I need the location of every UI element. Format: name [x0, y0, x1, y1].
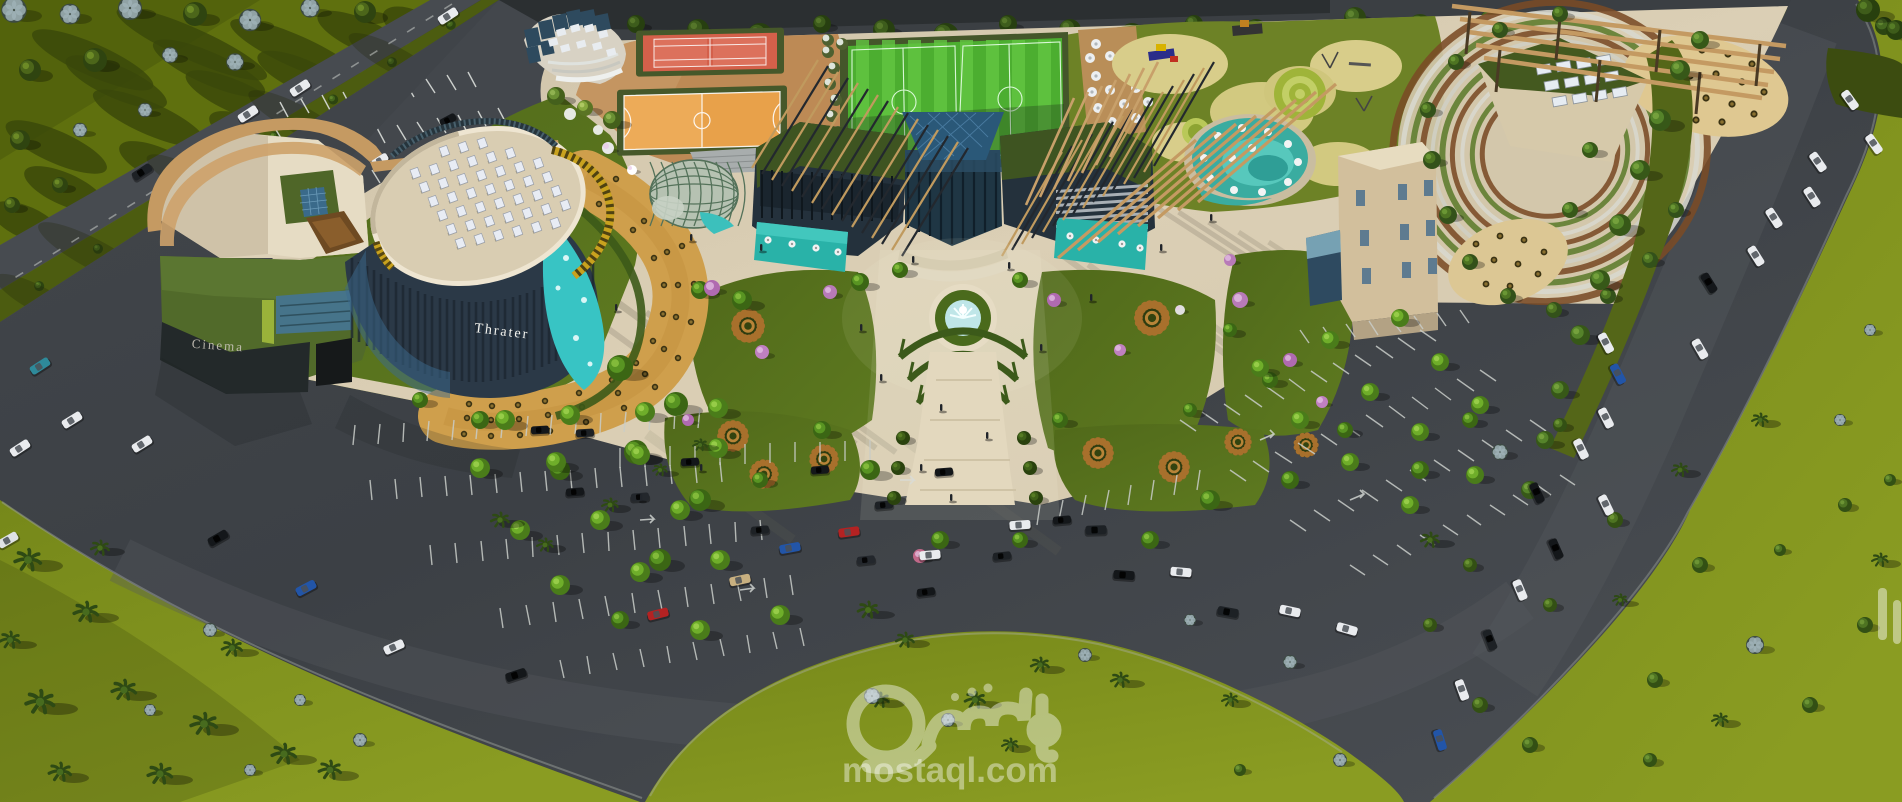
svg-text:mostaql.com: mostaql.com — [842, 751, 1058, 790]
